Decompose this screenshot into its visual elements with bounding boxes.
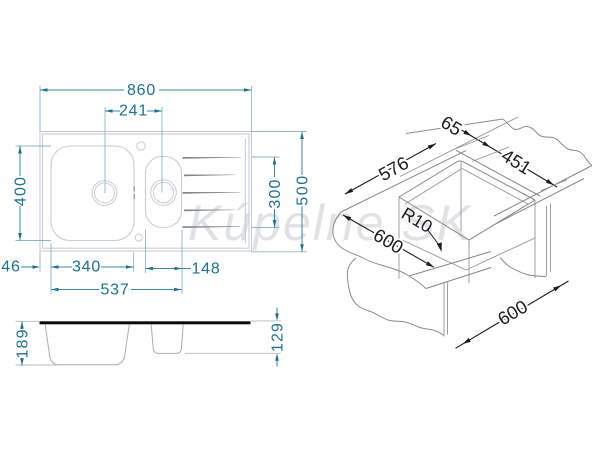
svg-text:300: 300 [267, 178, 284, 208]
svg-text:129: 129 [270, 322, 287, 352]
svg-text:148: 148 [191, 261, 220, 278]
svg-text:860: 860 [127, 82, 156, 99]
svg-text:46: 46 [1, 259, 20, 276]
svg-text:400: 400 [13, 176, 30, 206]
svg-text:340: 340 [72, 259, 101, 276]
svg-text:537: 537 [100, 282, 129, 299]
svg-text:500: 500 [295, 174, 312, 206]
svg-text:189: 189 [15, 328, 32, 358]
svg-text:241: 241 [119, 103, 148, 120]
